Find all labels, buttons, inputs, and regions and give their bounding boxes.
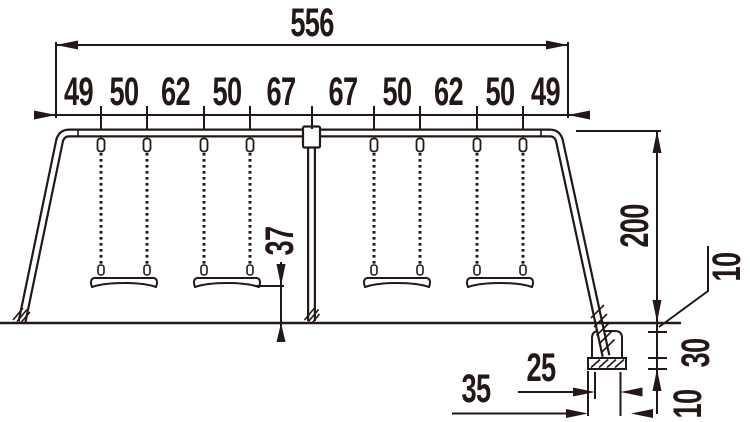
seat-height-label: 37 <box>258 227 302 256</box>
leader-line <box>659 246 708 327</box>
arrowhead-left <box>631 409 653 418</box>
center-tee-connector <box>303 127 320 148</box>
chain <box>520 139 527 276</box>
segment-label: 50 <box>383 70 412 114</box>
arrowhead-up <box>277 323 286 342</box>
arrowhead-right <box>566 409 588 418</box>
chain <box>417 139 424 276</box>
segment-label: 50 <box>213 70 242 114</box>
arrowhead-down <box>653 300 662 322</box>
arrowhead-left <box>56 41 78 50</box>
segment-dimensions: 49 50 62 50 67 67 50 62 50 49 <box>34 70 590 129</box>
segment-label: 62 <box>161 70 190 114</box>
seat <box>91 278 157 287</box>
swing-set-dimension-drawing: 556 49 50 62 50 67 67 50 62 50 49 <box>0 0 750 422</box>
height-label: 200 <box>613 204 657 247</box>
arrowhead-up <box>653 369 662 391</box>
arrowhead-left <box>34 111 56 120</box>
segment-label: 67 <box>329 70 358 114</box>
base-width-label: 35 <box>462 367 492 411</box>
arrowhead-right <box>568 111 590 120</box>
segment-label: 67 <box>267 70 296 114</box>
seat <box>364 278 430 287</box>
drawing-canvas: 556 49 50 62 50 67 67 50 62 50 49 <box>0 0 750 422</box>
block-depth-label: 30 <box>674 339 718 368</box>
ground-offset-label: 10 <box>705 253 749 282</box>
base-depth-label: 10 <box>666 390 710 419</box>
chain <box>144 139 151 276</box>
arrowhead-up <box>653 131 662 153</box>
arrowhead-right <box>546 41 568 50</box>
segment-label: 62 <box>434 70 463 114</box>
chain <box>474 139 481 276</box>
segment-label: 50 <box>486 70 515 114</box>
seat <box>467 278 533 287</box>
segment-label: 50 <box>110 70 139 114</box>
segment-label: 49 <box>531 70 560 114</box>
chain <box>371 139 378 276</box>
arrowhead-down <box>277 264 286 286</box>
footing-depth-dimensions: 10 30 10 <box>648 246 749 418</box>
arrowhead-left <box>621 388 643 397</box>
chain <box>98 139 105 276</box>
seat <box>194 278 260 287</box>
block-width-label: 25 <box>527 346 557 390</box>
chain <box>247 139 254 276</box>
arrowhead-right <box>573 388 595 397</box>
seat-height-dimension: 37 <box>256 227 302 342</box>
segment-label: 49 <box>64 70 93 114</box>
chain <box>201 139 208 276</box>
total-width-label: 556 <box>290 1 333 45</box>
